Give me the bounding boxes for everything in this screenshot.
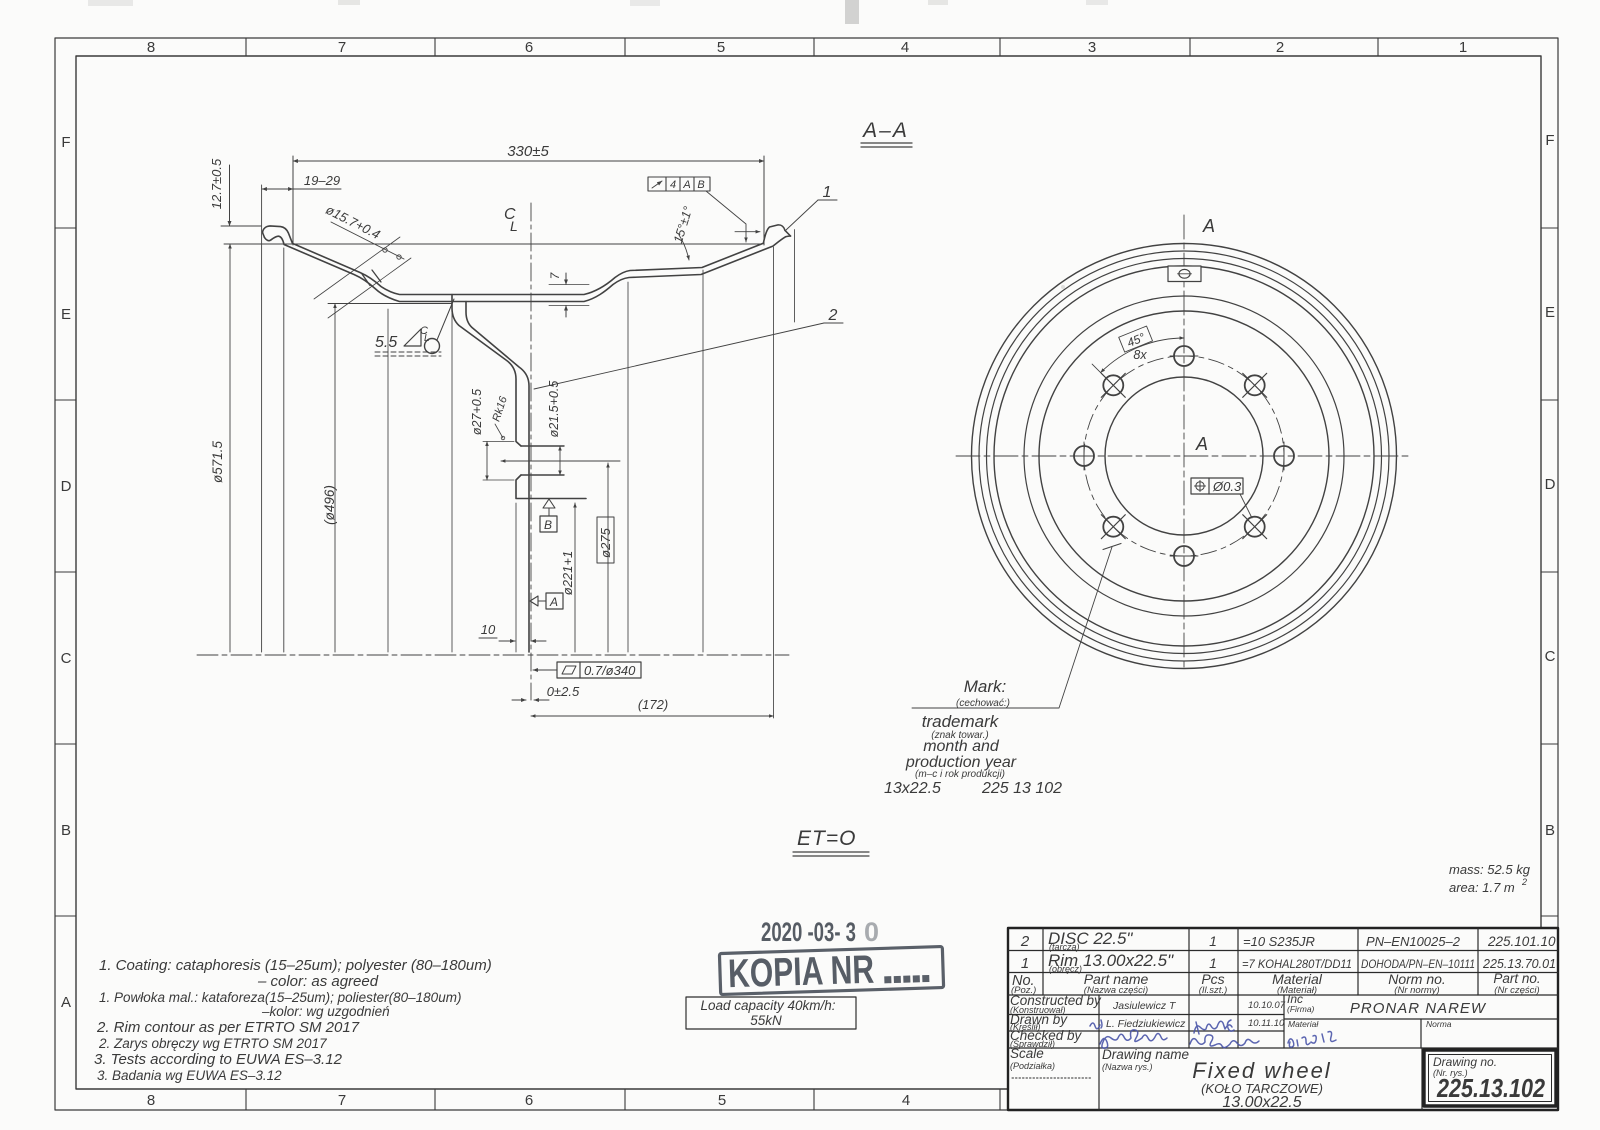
svg-text:A: A (61, 994, 71, 1011)
svg-text:month and: month and (923, 738, 1000, 755)
svg-text:Drawing no.: Drawing no. (1433, 1055, 1497, 1069)
svg-text:55kN: 55kN (750, 1013, 782, 1028)
svg-text:225.13.70.01: 225.13.70.01 (1482, 957, 1556, 971)
svg-text:0: 0 (864, 917, 879, 947)
svg-text:15°±1°: 15°±1° (671, 205, 695, 245)
svg-text:1: 1 (1459, 39, 1467, 56)
svg-text:8: 8 (147, 1092, 155, 1109)
svg-text:(Il.szt.): (Il.szt.) (1199, 985, 1228, 996)
svg-text:B: B (61, 822, 71, 839)
svg-text:2. Zarys obręczy wg ETRTO: 2. Zarys obręczy wg ETRTO SM 2017 (98, 1036, 327, 1051)
svg-text:3. Badania wg EUWA ES–3.12: 3. Badania wg EUWA ES–3.12 (97, 1068, 282, 1083)
svg-text:13.00x22.5: 13.00x22.5 (1222, 1094, 1301, 1111)
svg-text:(Podziałka): (Podziałka) (1010, 1061, 1055, 1071)
svg-text:=7 KOHAL280T/DD11: =7 KOHAL280T/DD11 (1242, 957, 1352, 971)
svg-text:Materiał: Materiał (1288, 1019, 1319, 1029)
svg-text:1: 1 (1021, 955, 1029, 972)
svg-text:E: E (1545, 304, 1555, 321)
svg-text:B: B (1545, 822, 1555, 839)
svg-text:6: 6 (525, 1092, 533, 1109)
svg-text:F: F (61, 134, 70, 151)
svg-text:1: 1 (1209, 955, 1217, 971)
svg-text:B: B (697, 179, 704, 191)
svg-text:ET=O: ET=O (797, 827, 856, 850)
svg-text:6: 6 (525, 39, 533, 56)
svg-text:(m–c i rok produkcji): (m–c i rok produkcji) (915, 769, 1005, 780)
svg-text:5.5: 5.5 (375, 334, 397, 351)
svg-text:D: D (1545, 476, 1556, 493)
svg-text:Ø0.3: Ø0.3 (1212, 479, 1242, 494)
svg-text:Rk16: Rk16 (490, 394, 510, 423)
svg-text:4: 4 (901, 39, 909, 56)
svg-text:=10 S235JR: =10 S235JR (1243, 934, 1315, 949)
svg-text:ø221+1: ø221+1 (560, 551, 575, 595)
svg-text:1: 1 (823, 184, 832, 201)
svg-text:L: L (510, 218, 518, 234)
svg-text:A: A (1202, 216, 1215, 236)
svg-text:KOPIA NR: KOPIA NR (727, 948, 874, 997)
svg-text:trademark: trademark (922, 712, 1000, 731)
svg-text:L. Fiedziukiewicz: L. Fiedziukiewicz (1106, 1018, 1186, 1030)
svg-text:Part no.: Part no. (1493, 971, 1540, 986)
svg-text:225.101.10: 225.101.10 (1487, 934, 1556, 949)
svg-text:10.10.07: 10.10.07 (1248, 1000, 1286, 1011)
svg-text:area: 1.7 m: area: 1.7 m (1449, 880, 1515, 895)
svg-text:ø571.5: ø571.5 (210, 440, 225, 483)
svg-text:PN–EN10025–2: PN–EN10025–2 (1366, 934, 1461, 949)
svg-text:(cechować:): (cechować:) (956, 698, 1010, 709)
svg-text:330±5: 330±5 (507, 143, 549, 160)
svg-text:7: 7 (338, 1092, 346, 1109)
svg-text:A: A (1195, 434, 1208, 454)
svg-text:1: 1 (1209, 933, 1217, 949)
svg-text:1. Coating: cataphoresis (1: 1. Coating: cataphoresis (15–25um); poly… (99, 957, 492, 974)
svg-text:C: C (1545, 648, 1556, 665)
svg-text:10.11.10: 10.11.10 (1248, 1018, 1285, 1029)
svg-text:0.7/ø340: 0.7/ø340 (584, 663, 636, 678)
svg-text:A: A (682, 179, 690, 191)
svg-text:2: 2 (1020, 933, 1030, 950)
svg-text:ø27+0.5: ø27+0.5 (470, 389, 484, 435)
svg-text:B: B (544, 518, 552, 532)
svg-text:5: 5 (717, 39, 725, 56)
svg-text:– color: as agreed: – color: as agreed (257, 973, 379, 990)
svg-text:10: 10 (481, 622, 496, 637)
svg-text:(Nazwa rys.): (Nazwa rys.) (1102, 1062, 1153, 1072)
svg-text:225.13.102: 225.13.102 (1436, 1073, 1545, 1103)
svg-text:C: C (61, 650, 72, 667)
svg-text:(172): (172) (638, 697, 668, 712)
svg-text:Load capacity 40km/h:: Load capacity 40km/h: (700, 998, 835, 1013)
svg-text:ø21.5+0.5: ø21.5+0.5 (547, 381, 561, 438)
svg-text:PRONAR NAREW: PRONAR NAREW (1350, 1000, 1487, 1017)
svg-text:Drawing name: Drawing name (1102, 1047, 1189, 1062)
svg-text:19–29: 19–29 (304, 173, 340, 188)
svg-text:8x: 8x (1133, 348, 1147, 362)
svg-text:A: A (549, 595, 558, 609)
svg-text:225 13 102: 225 13 102 (981, 780, 1062, 797)
svg-text:Mark:: Mark: (964, 677, 1007, 696)
svg-text:2: 2 (1521, 877, 1527, 887)
svg-text:Norma: Norma (1426, 1019, 1452, 1029)
svg-text:2: 2 (828, 307, 838, 324)
svg-text:D: D (61, 478, 72, 495)
svg-text:2020 -03- 3: 2020 -03- 3 (761, 917, 856, 947)
svg-text:2: 2 (1276, 39, 1284, 56)
svg-text:(Nr normy): (Nr normy) (1394, 985, 1439, 996)
svg-text:–kolor: wg uzgodnień: –kolor: wg uzgodnień (261, 1004, 390, 1019)
svg-text:L: L (424, 333, 430, 344)
svg-text:(Nr części): (Nr części) (1494, 985, 1539, 996)
svg-text:Jasiulewicz T: Jasiulewicz T (1112, 1000, 1177, 1012)
svg-text:7: 7 (338, 39, 346, 56)
svg-text:7: 7 (548, 271, 562, 279)
svg-text:13x22.5: 13x22.5 (884, 780, 941, 797)
svg-text:4: 4 (670, 179, 676, 191)
svg-text:3. Tests according to EUWA: 3. Tests according to EUWA ES–3.12 (94, 1051, 343, 1068)
svg-text:A–A: A–A (861, 119, 909, 142)
svg-text:ø15.7+0.4: ø15.7+0.4 (323, 202, 382, 242)
svg-text:(obręcz): (obręcz) (1049, 964, 1082, 974)
svg-text:5: 5 (718, 1092, 726, 1109)
svg-text:(Firma): (Firma) (1287, 1004, 1315, 1014)
svg-text:DOHODA/PN–EN–10111: DOHODA/PN–EN–10111 (1361, 957, 1475, 971)
svg-text:4: 4 (902, 1092, 910, 1109)
svg-text:F: F (1545, 132, 1554, 149)
svg-text:E: E (61, 306, 71, 323)
svg-text:12.7±0.5: 12.7±0.5 (209, 158, 224, 209)
svg-text:mass: 52.5 kg: mass: 52.5 kg (1449, 862, 1531, 877)
svg-text:ø275: ø275 (598, 527, 613, 557)
svg-text:Scale: Scale (1010, 1046, 1044, 1061)
svg-text:2. Rim contour as per ETR: 2. Rim contour as per ETRTO SM 2017 (96, 1019, 360, 1036)
svg-text:8: 8 (147, 39, 155, 56)
svg-text:1. Powłoka mal.: kataforeza(: 1. Powłoka mal.: kataforeza(15–25um); po… (99, 990, 461, 1005)
svg-text:0±2.5: 0±2.5 (547, 684, 580, 699)
svg-text:Fixed wheel: Fixed wheel (1192, 1058, 1331, 1083)
svg-text:3: 3 (1088, 39, 1096, 56)
